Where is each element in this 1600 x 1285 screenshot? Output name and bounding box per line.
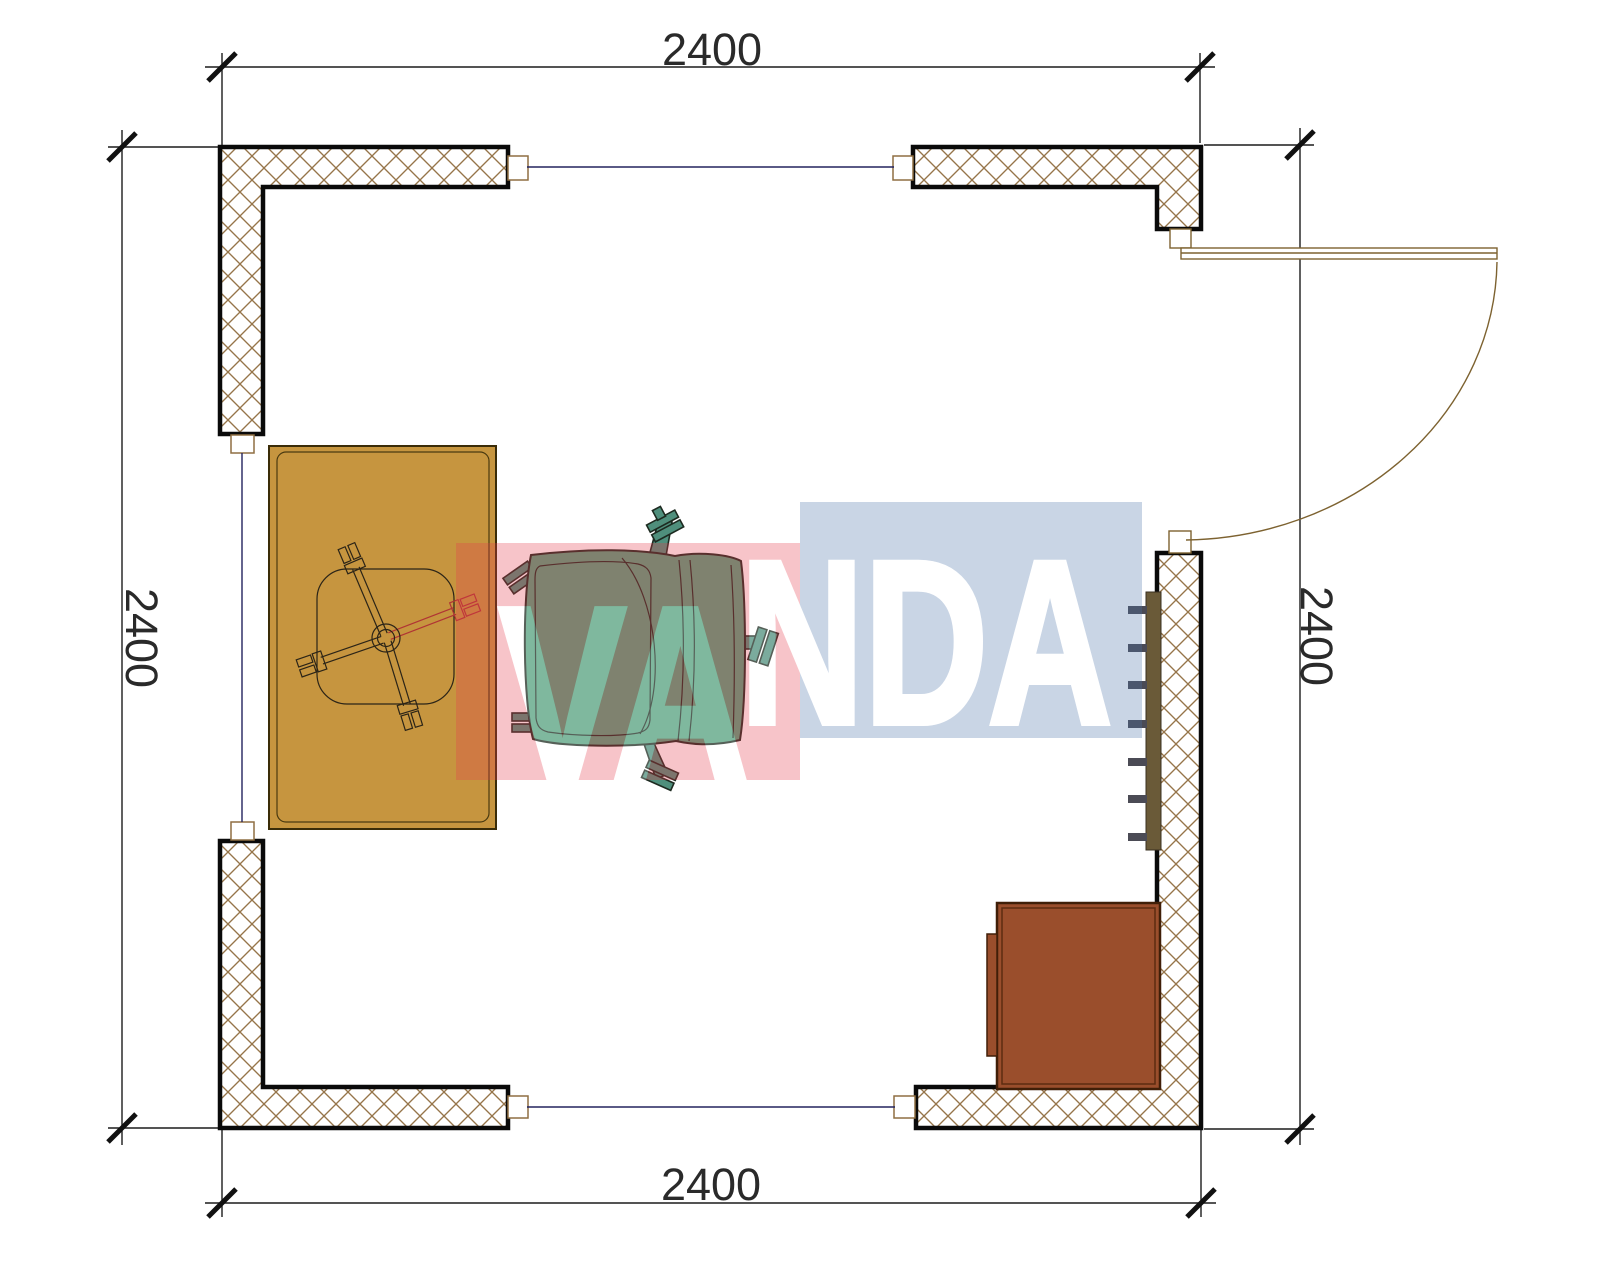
svg-text:2400: 2400 (1291, 586, 1342, 686)
svg-text:2400: 2400 (661, 1159, 761, 1210)
svg-text:2400: 2400 (662, 24, 762, 75)
svg-text:2400: 2400 (116, 588, 167, 688)
svg-text:VA: VA (499, 556, 749, 832)
svg-text:NDA: NDA (740, 513, 1112, 773)
